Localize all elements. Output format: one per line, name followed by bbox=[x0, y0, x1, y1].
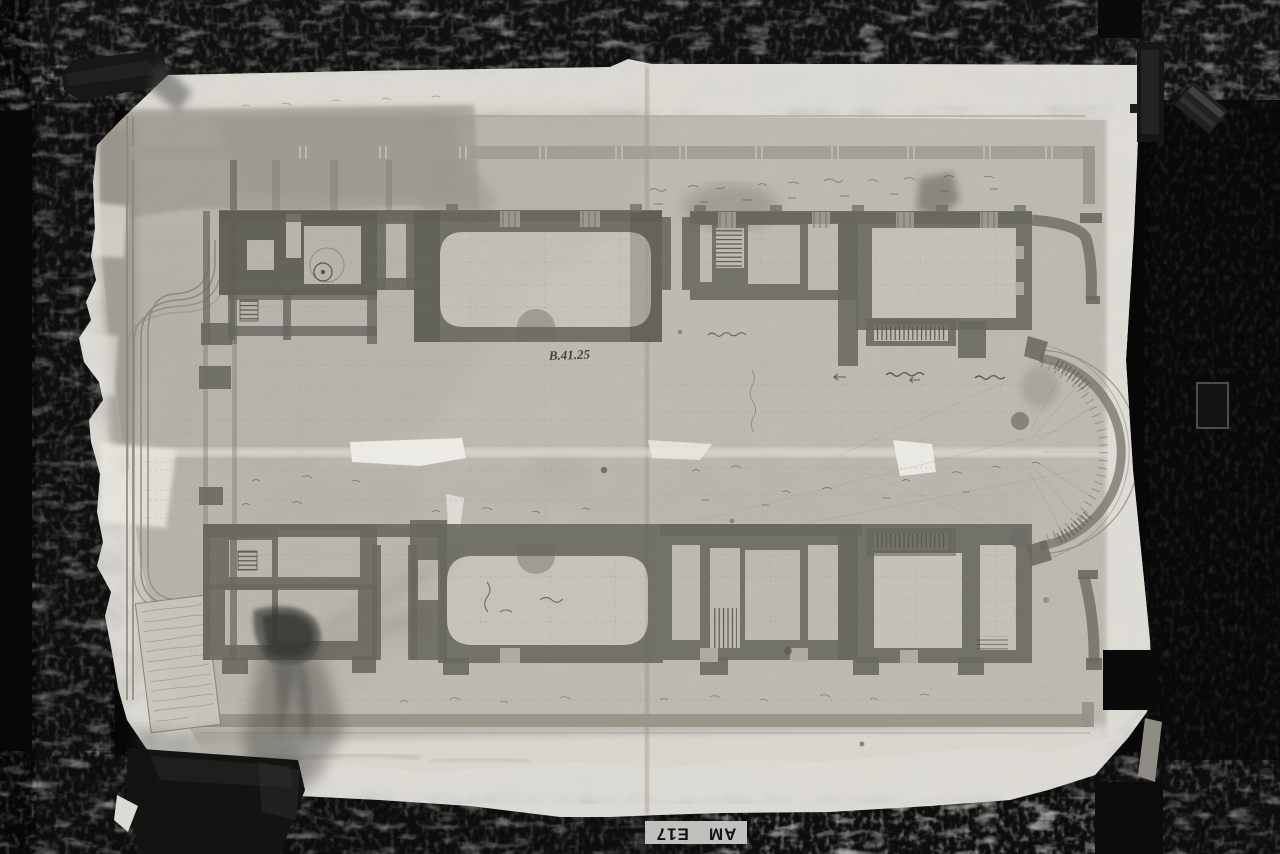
svg-text:AM E17: AM E17 bbox=[656, 825, 737, 844]
svg-text:B.41.25: B.41.25 bbox=[548, 347, 591, 363]
